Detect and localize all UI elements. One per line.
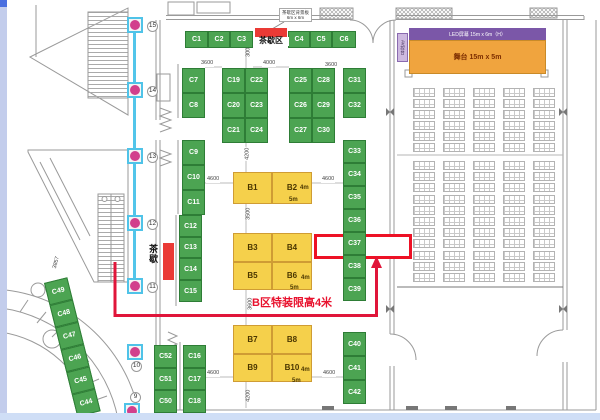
seat-block: [533, 228, 555, 237]
pillar-marker-13: [127, 148, 143, 164]
seat-block: [473, 239, 495, 248]
booth-c15: C15: [179, 280, 202, 302]
booth-size-label: 4m: [301, 275, 310, 281]
seat-block: [503, 239, 525, 248]
seat-block: [503, 161, 525, 170]
tea-break-side-marker: [163, 243, 174, 280]
seat-block: [413, 183, 435, 192]
seat-block: [533, 99, 555, 108]
seat-block: [533, 239, 555, 248]
stage: 舞台 15m x 5m: [409, 40, 546, 74]
pillar-marker-12: [127, 215, 143, 231]
tea-break-area-label: 茶歇区: [253, 37, 289, 46]
booth-size-label: 4m: [301, 367, 310, 373]
booth-c42: C42: [343, 380, 366, 404]
seat-block: [443, 262, 465, 271]
pillar-marker-11: [127, 278, 143, 294]
booth-c1: C1: [185, 31, 208, 48]
seat-block: [413, 217, 435, 226]
booth-c50: C50: [154, 390, 177, 413]
seat-block: [503, 228, 525, 237]
booth-c19: C19: [222, 68, 245, 93]
dimension-label: 4000: [262, 61, 276, 67]
booth-c20: C20: [222, 93, 245, 118]
booth-c17: C17: [183, 368, 206, 390]
booth-c4: C4: [288, 31, 310, 48]
seat-block: [443, 183, 465, 192]
seat-block: [533, 161, 555, 170]
dimension-label: 3857: [53, 255, 62, 270]
dimension-label: 4200: [246, 389, 252, 403]
seat-block: [473, 228, 495, 237]
pillar-number-10: 10: [131, 361, 142, 372]
seat-block: [503, 262, 525, 271]
seat-block: [473, 99, 495, 108]
seat-block: [533, 217, 555, 226]
dimension-label: 4200: [245, 147, 251, 161]
booth-c30: C30: [312, 118, 335, 143]
seat-block: [473, 88, 495, 97]
seat-block: [533, 251, 555, 260]
seat-block: [413, 99, 435, 108]
booth-size-label: 5m: [292, 378, 301, 384]
pillar-marker-14: [127, 82, 143, 98]
booth-c12: C12: [179, 215, 202, 237]
seat-block: [503, 273, 525, 282]
seat-block: [443, 99, 465, 108]
booth-b4: B4: [272, 233, 312, 262]
booth-c8: C8: [182, 93, 205, 118]
booth-c21: C21: [222, 118, 245, 143]
tea-backdrop-note: 茶歇区背景板 6m x 6m: [279, 8, 312, 22]
dimension-label: 4600: [206, 177, 220, 183]
dimension-label: 3600: [200, 61, 214, 67]
seat-block: [443, 132, 465, 141]
seat-block: [413, 262, 435, 271]
seat-block: [413, 206, 435, 215]
seat-block: [533, 262, 555, 271]
seat-block: [413, 110, 435, 119]
seat-block: [413, 121, 435, 130]
booth-c51: C51: [154, 368, 177, 390]
booth-c39: C39: [343, 278, 366, 301]
booth-size-label: 5m: [290, 285, 299, 291]
booth-c32: C32: [343, 93, 366, 118]
dimension-label: 3500: [246, 207, 252, 221]
pillar-number-15: 15: [147, 21, 158, 32]
pillar-marker-10: [127, 344, 143, 360]
booth-c31: C31: [343, 68, 366, 93]
booth-c2: C2: [208, 31, 230, 48]
booth-b7: B7: [233, 325, 272, 354]
tea-backdrop-note-line2: 6m x 6m: [282, 15, 309, 20]
booth-c38: C38: [343, 255, 366, 278]
seat-block: [413, 143, 435, 152]
seat-block: [413, 195, 435, 204]
window-edge-left: [0, 0, 7, 420]
window-corner-mark: [0, 0, 7, 7]
seat-block: [473, 273, 495, 282]
booth-b5: B5: [233, 262, 272, 290]
seat-block: [533, 206, 555, 215]
booth-c16: C16: [183, 345, 206, 368]
seat-block: [413, 132, 435, 141]
booth-c52: C52: [154, 345, 177, 368]
booth-c6: C6: [332, 31, 356, 48]
seat-block: [533, 143, 555, 152]
seat-block: [503, 206, 525, 215]
booth-b8: B8: [272, 325, 312, 354]
seat-block: [413, 251, 435, 260]
seat-block: [503, 251, 525, 260]
booth-c40: C40: [343, 332, 366, 356]
booth-b1: B1: [233, 172, 272, 204]
seat-block: [473, 262, 495, 271]
booth-c7: C7: [182, 68, 205, 93]
dimension-label: 4600: [322, 371, 336, 377]
seat-block: [473, 161, 495, 170]
booth-size-label: 5m: [289, 197, 298, 203]
seat-block: [533, 183, 555, 192]
seat-block: [503, 217, 525, 226]
booth-c18: C18: [183, 390, 206, 413]
seat-block: [443, 206, 465, 215]
seat-block: [533, 110, 555, 119]
pillar-number-9: 9: [130, 392, 141, 403]
booth-c34: C34: [343, 163, 366, 186]
seat-block: [503, 143, 525, 152]
seat-block: [413, 239, 435, 248]
seat-block: [443, 143, 465, 152]
seat-block: [443, 217, 465, 226]
seat-block: [473, 110, 495, 119]
led-screen: LED屏幕 15m x 6m（H）: [409, 28, 546, 40]
booth-c13: C13: [179, 237, 202, 258]
seat-block: [443, 121, 465, 130]
seat-block: [533, 172, 555, 181]
seat-block: [443, 195, 465, 204]
seat-block: [443, 239, 465, 248]
seat-block: [473, 183, 495, 192]
seat-block: [443, 228, 465, 237]
seat-block: [473, 143, 495, 152]
seat-block: [473, 195, 495, 204]
booth-c10: C10: [182, 165, 205, 190]
seat-block: [473, 251, 495, 260]
booth-c27: C27: [289, 118, 312, 143]
seat-block: [413, 273, 435, 282]
seat-block: [503, 121, 525, 130]
dimension-label: 4600: [206, 371, 220, 377]
booth-b9: B9: [233, 354, 272, 382]
seat-block: [443, 172, 465, 181]
seat-block: [413, 88, 435, 97]
seat-block: [413, 161, 435, 170]
booth-c24: C24: [245, 118, 268, 143]
seat-block: [473, 217, 495, 226]
booth-c36: C36: [343, 209, 366, 232]
booth-c9: C9: [182, 140, 205, 165]
seat-block: [503, 99, 525, 108]
booth-c11: C11: [182, 190, 205, 215]
booth-c22: C22: [245, 68, 268, 93]
exhibition-floor-plan: LED屏幕 15m x 6m（H） 舞台 15m x 5m AV控台 茶歇区 茶…: [0, 0, 600, 420]
booth-c37: C37: [343, 232, 366, 255]
seat-block: [503, 88, 525, 97]
pillar-number-13: 13: [147, 152, 158, 163]
seat-block: [443, 161, 465, 170]
seat-block: [473, 121, 495, 130]
booth-c26: C26: [289, 93, 312, 118]
seat-block: [443, 110, 465, 119]
booth-c33: C33: [343, 140, 366, 163]
booth-strip-diagonal: C49C48C47C46C45C44: [44, 277, 101, 417]
booth-b3: B3: [233, 233, 272, 262]
height-limit-annotation: B区特装限高4米: [252, 297, 332, 309]
booth-c5: C5: [310, 31, 332, 48]
seat-block: [533, 132, 555, 141]
booth-c14: C14: [179, 258, 202, 280]
seat-block: [473, 172, 495, 181]
pillar-number-12: 12: [147, 219, 158, 230]
seat-block: [413, 172, 435, 181]
pillar-marker-15: [127, 17, 143, 33]
seat-block: [503, 132, 525, 141]
booth-c41: C41: [343, 356, 366, 380]
pillar-number-11: 11: [147, 282, 158, 293]
booth-c3: C3: [230, 31, 253, 48]
seat-block: [443, 251, 465, 260]
seat-block: [473, 206, 495, 215]
seat-block: [503, 195, 525, 204]
booth-c35: C35: [343, 186, 366, 209]
seat-block: [533, 88, 555, 97]
seat-block: [533, 121, 555, 130]
seat-block: [533, 273, 555, 282]
seat-block: [473, 132, 495, 141]
seat-block: [443, 273, 465, 282]
pillar-number-14: 14: [147, 86, 158, 97]
seat-block: [503, 172, 525, 181]
booth-c23: C23: [245, 93, 268, 118]
seat-block: [503, 183, 525, 192]
seat-block: [413, 228, 435, 237]
av-console: AV控台: [397, 33, 408, 62]
seat-block: [443, 88, 465, 97]
booth-c29: C29: [312, 93, 335, 118]
booth-c25: C25: [289, 68, 312, 93]
window-edge-bottom: [0, 413, 600, 420]
seat-block: [503, 110, 525, 119]
booth-c28: C28: [312, 68, 335, 93]
tea-break-side-label: 茶歇: [148, 244, 157, 264]
booth-size-label: 4m: [300, 185, 309, 191]
dimension-label: 4600: [321, 177, 335, 183]
seat-block: [533, 195, 555, 204]
